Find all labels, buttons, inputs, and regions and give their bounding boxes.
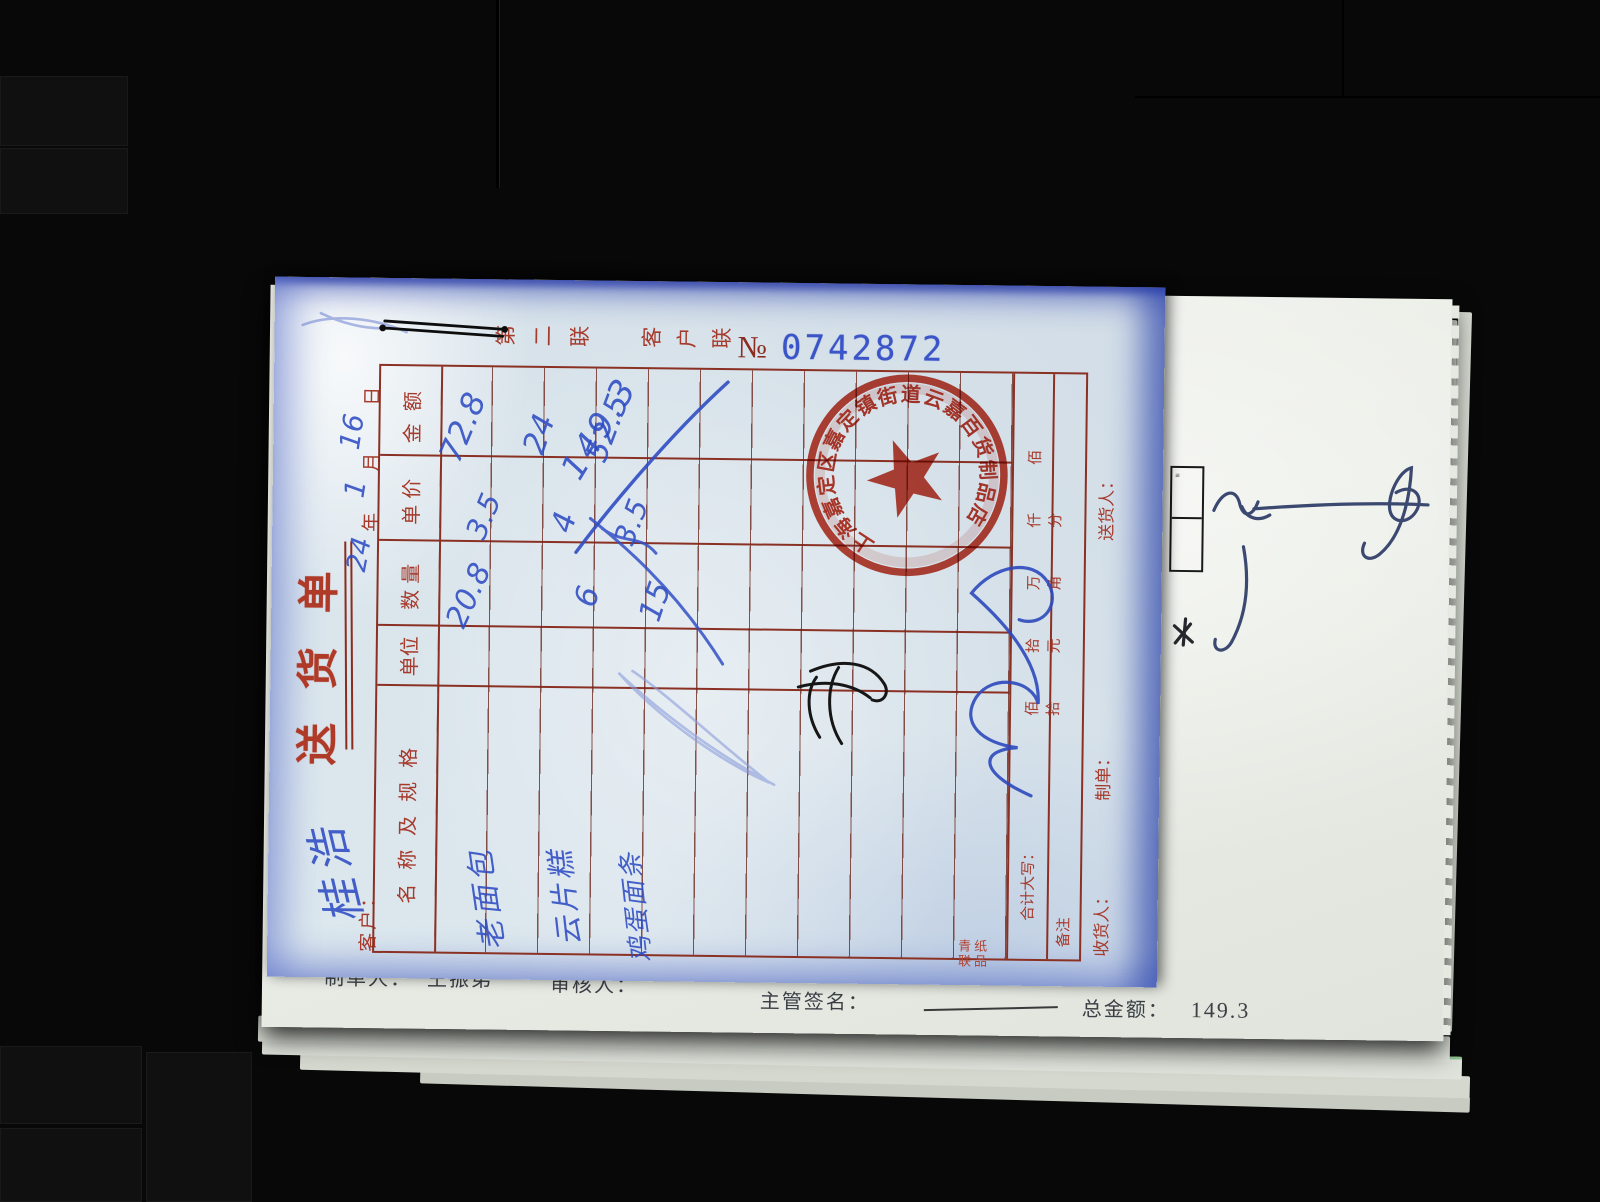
black-pen-scribble [798,663,887,744]
desk-seam-highlight [499,0,500,188]
desk-seam-top-right-v [1342,0,1344,96]
form-handwriting-strokes [267,277,1165,988]
signature-asterisk-mark [1174,619,1192,645]
signature-scribble-m [1214,493,1270,519]
stamp-star-icon [857,426,956,523]
desk-panel-bottom-left-2 [0,1128,142,1202]
signature-g-loop [1363,467,1420,559]
delivery-form: 送货单 客户： 桂浩 24 年 1 月 16 日 第二联 客户联 № 07428… [267,277,1165,988]
tally-mark-end-dot-2 [501,326,508,333]
total-underline-slash [576,380,728,554]
desk-seam-top-right [1135,96,1600,98]
signature-caps-row [969,567,1053,796]
signature-faint-scribble [617,671,775,785]
signature-diagonal-scrawl [589,518,725,664]
tally-double-line-mark [383,321,505,336]
desk-panel-bottom-left-1 [0,1046,142,1124]
signature-long-stroke [1254,502,1428,511]
desk-panel-top-left-2 [0,148,128,214]
photo-of-delivery-note: { "form": { "title": "送货单", "copy_labels… [0,0,1600,1200]
desk-panel-bottom-left-3 [146,1052,252,1202]
desk-panel-top-left-1 [0,76,128,146]
signature-descender [1215,546,1247,650]
